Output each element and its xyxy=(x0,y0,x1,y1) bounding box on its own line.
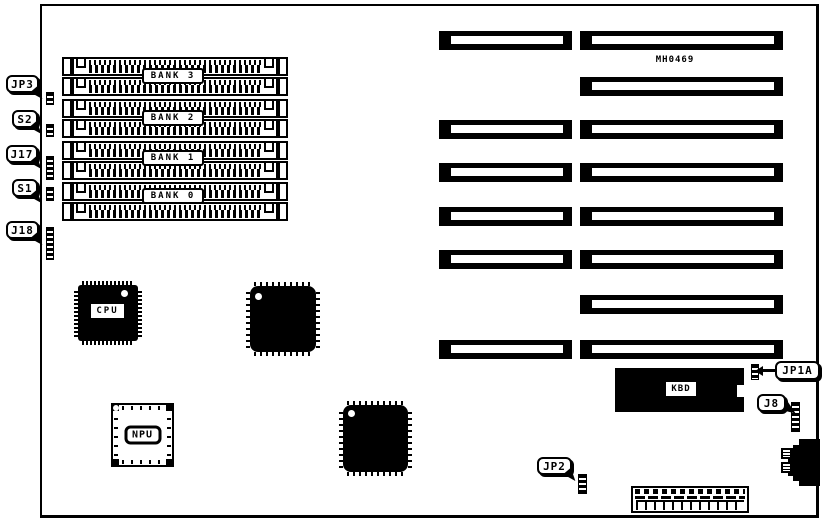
slot-stripe xyxy=(451,36,563,44)
bank1-label: BANK 1 xyxy=(142,150,204,166)
j17-callout: J17 xyxy=(6,145,38,163)
s1-callout-label: S1 xyxy=(17,182,32,195)
isa-slot-16bit xyxy=(580,250,783,269)
power-connector xyxy=(631,486,749,513)
j8-callout: J8 xyxy=(757,394,786,412)
simm-clip xyxy=(76,204,86,213)
simm-clip xyxy=(264,121,274,130)
cpu-pins-bottom xyxy=(82,341,134,345)
isa-slot-8bit xyxy=(439,120,572,139)
isa-slot-8bit xyxy=(439,340,572,359)
j17-connector xyxy=(46,156,54,180)
simm-clip xyxy=(76,121,86,130)
slot-stripe xyxy=(592,300,774,308)
cpu-label: CPU xyxy=(91,304,124,318)
isa-slot-16bit xyxy=(580,295,783,314)
simm-clip xyxy=(76,143,86,152)
simm-end xyxy=(70,184,74,199)
simm-clip xyxy=(264,143,274,152)
slot-stripe xyxy=(592,345,774,353)
npu-corner xyxy=(112,459,119,466)
isa-slot-16bit xyxy=(580,163,783,182)
jp1a-arrow-head xyxy=(755,366,763,376)
cpu-pins-right xyxy=(138,289,142,337)
slot-stripe xyxy=(592,255,774,263)
simm-end xyxy=(276,121,280,136)
isa-slot-8bit xyxy=(439,207,572,226)
jp1a-callout-label: JP1A xyxy=(782,364,813,377)
simm-end xyxy=(276,143,280,158)
qfp-chip-lower xyxy=(339,401,412,476)
din-port-lower xyxy=(781,462,792,473)
slot-stripe xyxy=(592,125,774,133)
simm-clip xyxy=(264,204,274,213)
j17-callout-label: J17 xyxy=(11,148,34,161)
slot-stripe xyxy=(592,212,774,220)
jp1a-callout: JP1A xyxy=(775,361,820,380)
board-part-number: MH0469 xyxy=(645,55,705,65)
slot-stripe xyxy=(451,345,563,353)
simm-clip xyxy=(76,163,86,172)
npu-corner xyxy=(166,459,173,466)
simm-end xyxy=(276,184,280,199)
qfp-pins-right xyxy=(408,409,412,468)
power-connector-pins xyxy=(635,489,745,494)
cpu-pin1-dot xyxy=(121,290,128,297)
isa-slot-8bit xyxy=(439,31,572,50)
simm-end xyxy=(276,59,280,74)
slot-stripe xyxy=(592,168,774,176)
isa-slot-16bit xyxy=(580,77,783,96)
simm-clip xyxy=(264,163,274,172)
npu-pin1-dot xyxy=(113,405,119,411)
simm-end xyxy=(70,79,74,94)
simm-end xyxy=(70,143,74,158)
slot-stripe xyxy=(592,36,774,44)
qfp-pin1-dot xyxy=(348,410,355,417)
npu-label: NPU xyxy=(124,426,161,445)
jp3-callout-label: JP3 xyxy=(11,78,34,91)
jp3-connector xyxy=(46,92,54,105)
qfp-pins-right xyxy=(316,290,320,348)
isa-slot-8bit xyxy=(439,250,572,269)
j8-callout-label: J8 xyxy=(764,397,779,410)
keyboard-din-connector xyxy=(799,439,820,486)
simm-clip xyxy=(76,184,86,193)
s2-callout: S2 xyxy=(12,110,38,128)
j18-connector xyxy=(46,227,54,260)
simm-end xyxy=(70,163,74,178)
simm-end xyxy=(70,101,74,116)
s1-connector xyxy=(46,187,54,201)
power-connector-keys xyxy=(635,496,745,499)
npu-ticks-left xyxy=(114,414,118,456)
simm-end xyxy=(276,204,280,219)
simm-socket-row8 xyxy=(62,202,288,221)
jp2-callout: JP2 xyxy=(537,457,572,475)
simm-end xyxy=(70,59,74,74)
isa-slot-16bit xyxy=(580,207,783,226)
slot-stripe xyxy=(592,82,774,90)
power-connector-sockets xyxy=(636,500,744,510)
j18-callout-label: J18 xyxy=(11,224,34,237)
bank2-label: BANK 2 xyxy=(142,110,204,126)
simm-clip xyxy=(76,101,86,110)
simm-clip xyxy=(76,59,86,68)
qfp-pin1-dot xyxy=(255,293,262,300)
npu-socket: NPU xyxy=(111,403,174,467)
npu-corner xyxy=(166,404,173,411)
simm-clip xyxy=(264,79,274,88)
isa-slot-16bit xyxy=(580,340,783,359)
jp3-callout: JP3 xyxy=(6,75,39,93)
simm-clip xyxy=(76,79,86,88)
s2-connector xyxy=(46,124,54,137)
slot-stripe xyxy=(451,255,563,263)
cpu-chip: CPU xyxy=(74,281,142,345)
npu-ticks-right xyxy=(167,414,171,456)
kbd-notch xyxy=(737,385,744,397)
jp2-callout-label: JP2 xyxy=(543,460,566,473)
simm-clip xyxy=(264,59,274,68)
simm-clip xyxy=(264,184,274,193)
npu-ticks-bottom xyxy=(122,460,163,464)
simm-end xyxy=(70,204,74,219)
simm-clip xyxy=(264,101,274,110)
slot-stripe xyxy=(451,125,563,133)
bank0-label: BANK 0 xyxy=(142,188,204,204)
simm-end xyxy=(276,101,280,116)
bank3-label: BANK 3 xyxy=(142,68,204,84)
slot-stripe xyxy=(451,168,563,176)
simm-end xyxy=(276,79,280,94)
slot-stripe xyxy=(451,212,563,220)
s1-callout: S1 xyxy=(12,179,38,197)
j18-callout: J18 xyxy=(6,221,39,239)
din-port-upper xyxy=(781,448,792,459)
qfp-pins-bottom xyxy=(254,352,312,356)
simm-end xyxy=(276,163,280,178)
isa-slot-8bit xyxy=(439,163,572,182)
kbd-chip: KBD xyxy=(615,368,744,412)
qfp-pins-bottom xyxy=(347,472,404,476)
qfp-chip-upper xyxy=(246,282,320,356)
npu-ticks-top xyxy=(122,406,163,410)
simm-pins xyxy=(89,205,261,218)
kbd-label: KBD xyxy=(666,382,696,396)
s2-callout-label: S2 xyxy=(17,113,32,126)
simm-end xyxy=(70,121,74,136)
isa-slot-16bit xyxy=(580,120,783,139)
isa-slot-16bit xyxy=(580,31,783,50)
